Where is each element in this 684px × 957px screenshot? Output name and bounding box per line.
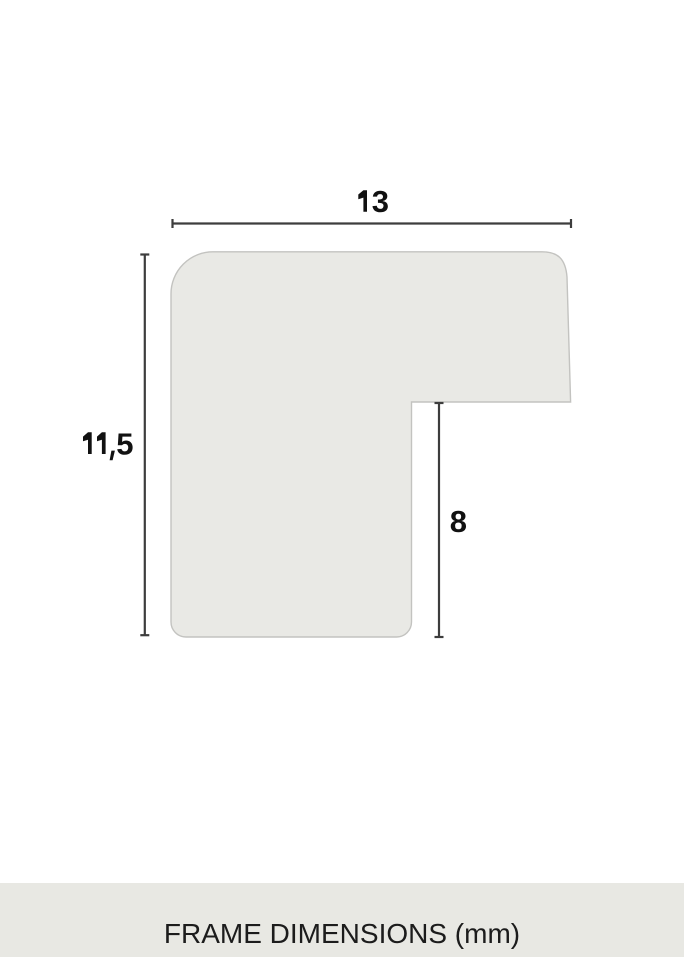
svg-text:8: 8: [450, 504, 467, 539]
svg-text:5: 5: [116, 426, 133, 461]
svg-text:3: 3: [372, 184, 389, 219]
svg-text:FRAME DIMENSIONS (mm): FRAME DIMENSIONS (mm): [164, 918, 520, 949]
